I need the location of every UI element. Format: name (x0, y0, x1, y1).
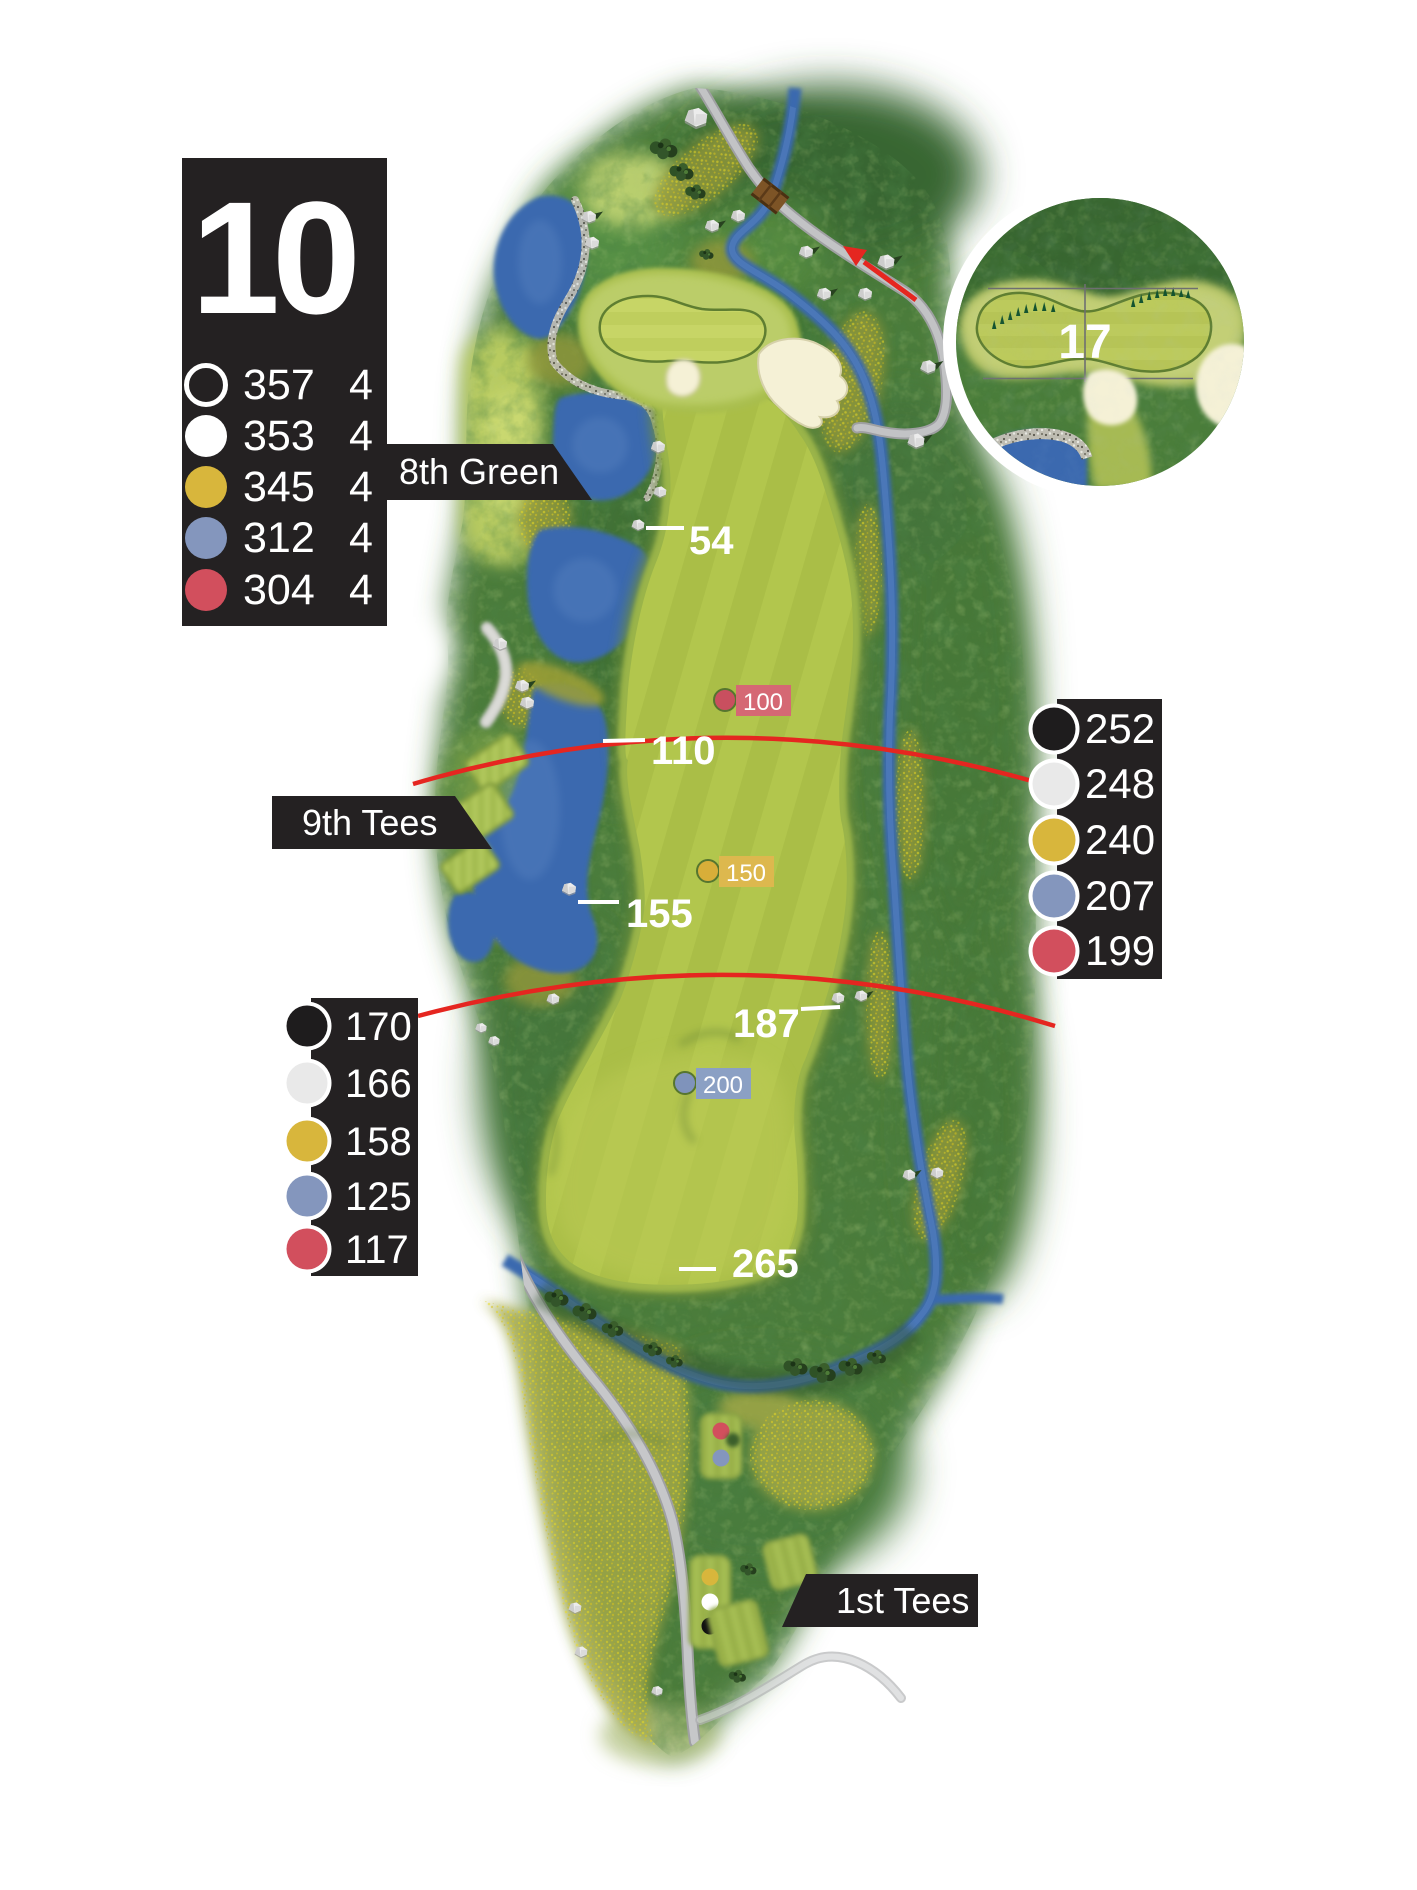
svg-text:158: 158 (345, 1120, 412, 1164)
svg-text:117: 117 (345, 1228, 409, 1272)
svg-text:4: 4 (349, 412, 373, 460)
svg-text:155: 155 (626, 892, 693, 936)
svg-text:187: 187 (733, 1002, 800, 1046)
svg-text:125: 125 (345, 1175, 412, 1219)
svg-text:4: 4 (349, 361, 373, 409)
svg-text:353: 353 (243, 412, 315, 460)
svg-text:304: 304 (243, 566, 315, 614)
svg-text:1st Tees: 1st Tees (836, 1580, 969, 1621)
svg-text:240: 240 (1085, 816, 1155, 863)
svg-text:110: 110 (651, 729, 716, 773)
svg-text:207: 207 (1085, 872, 1155, 919)
svg-text:200: 200 (703, 1072, 743, 1099)
svg-text:8th Green: 8th Green (399, 451, 559, 492)
svg-text:166: 166 (345, 1062, 412, 1106)
svg-text:4: 4 (349, 514, 373, 562)
svg-text:54: 54 (689, 519, 734, 563)
svg-text:150: 150 (726, 860, 766, 887)
svg-text:4: 4 (349, 463, 373, 511)
svg-text:357: 357 (243, 361, 315, 409)
svg-text:170: 170 (345, 1005, 412, 1049)
svg-text:252: 252 (1085, 705, 1155, 752)
svg-text:100: 100 (743, 689, 783, 716)
svg-text:265: 265 (732, 1242, 799, 1286)
svg-text:345: 345 (243, 463, 315, 511)
svg-text:4: 4 (349, 566, 373, 614)
svg-text:248: 248 (1085, 760, 1155, 807)
svg-text:10: 10 (191, 168, 355, 347)
svg-text:312: 312 (243, 514, 315, 562)
svg-text:9th Tees: 9th Tees (302, 802, 437, 843)
svg-text:199: 199 (1085, 927, 1155, 974)
